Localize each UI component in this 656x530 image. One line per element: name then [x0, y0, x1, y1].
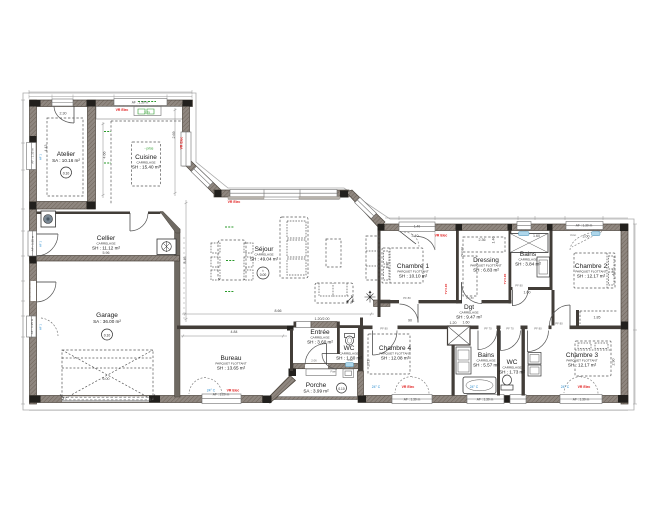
svg-text:VR Elec: VR Elec — [116, 108, 129, 112]
svg-text:24° C: 24° C — [470, 385, 479, 389]
svg-text:5.96: 5.96 — [103, 251, 110, 255]
svg-text:24° C: 24° C — [372, 385, 381, 389]
svg-text:AF 1: AF 1 — [39, 241, 43, 247]
svg-text:8.66: 8.66 — [275, 309, 282, 313]
svg-text:2.36: 2.36 — [479, 238, 486, 242]
svg-text:SH : 5.57 m²: SH : 5.57 m² — [473, 363, 499, 368]
svg-text:0.10: 0.10 — [104, 334, 111, 338]
svg-text:SH : 3.60 m²: SH : 3.60 m² — [307, 340, 333, 345]
svg-text:SH : 13.65 m²: SH : 13.65 m² — [217, 366, 246, 371]
svg-text:PF 80: PF 80 — [555, 322, 563, 326]
svg-text:2.69: 2.69 — [172, 132, 176, 139]
svg-text:2.72: 2.72 — [367, 360, 371, 367]
svg-text:2.06: 2.06 — [311, 359, 317, 363]
svg-text:3.40: 3.40 — [412, 234, 419, 238]
svg-text:PF 70: PF 70 — [506, 327, 514, 331]
svg-text:AF : 1.20 m: AF : 1.20 m — [213, 393, 230, 397]
svg-text:AF : 1.35 m: AF : 1.35 m — [31, 235, 35, 251]
svg-text:SH : 12.17 m²: SH : 12.17 m² — [577, 274, 606, 279]
svg-text:TV 0.90: TV 0.90 — [503, 273, 507, 284]
svg-text:1.00: 1.00 — [347, 358, 353, 362]
svg-text:1.60: 1.60 — [463, 321, 470, 325]
svg-text:1.85: 1.85 — [594, 316, 601, 320]
svg-text:AF : 1.30 m: AF : 1.30 m — [573, 398, 590, 402]
svg-text:0.10: 0.10 — [63, 172, 70, 176]
svg-text:SH : 15.40 m²: SH : 15.40 m² — [132, 165, 161, 170]
svg-text:SH : 10.10 m²: SH : 10.10 m² — [399, 274, 428, 279]
svg-text:2.90: 2.90 — [612, 359, 616, 366]
svg-text:24° C: 24° C — [561, 385, 570, 389]
svg-text:1.40: 1.40 — [492, 237, 496, 244]
svg-text:1.20: 1.20 — [450, 321, 457, 325]
svg-text:2.87: 2.87 — [386, 262, 390, 269]
svg-text:0.10: 0.10 — [338, 387, 344, 391]
svg-text:4.87: 4.87 — [612, 269, 616, 276]
svg-text:1.60: 1.60 — [524, 291, 531, 295]
svg-text:1.60: 1.60 — [533, 234, 540, 238]
svg-text:PF 80: PF 80 — [515, 284, 523, 288]
svg-text:SH : 11.12 m²: SH : 11.12 m² — [92, 246, 120, 251]
svg-text:VR Elec: VR Elec — [402, 385, 415, 389]
svg-text:SH : 6.83 m²: SH : 6.83 m² — [473, 268, 499, 273]
svg-text:VR Elec: VR Elec — [227, 389, 240, 393]
svg-text:24° C: 24° C — [207, 389, 216, 393]
svg-text:Volet: Volet — [570, 233, 576, 237]
svg-text:AF : 1.30 m: AF : 1.30 m — [576, 224, 593, 228]
svg-text:8.46: 8.46 — [183, 257, 187, 264]
svg-text:1.20/2.00: 1.20/2.00 — [315, 317, 330, 321]
svg-text:AF : 1.30 m: AF : 1.30 m — [477, 398, 494, 402]
svg-text:PF 70: PF 70 — [484, 327, 492, 331]
svg-text:SH : 49.04 m²: SH : 49.04 m² — [250, 257, 279, 262]
svg-text:Garage: Garage — [96, 312, 118, 319]
svg-text:SA : 36.00 m²: SA : 36.00 m² — [93, 319, 121, 324]
svg-text:VR Elec: VR Elec — [435, 234, 448, 238]
svg-text:PF 80: PF 80 — [403, 296, 411, 300]
svg-text:PF 80: PF 80 — [380, 327, 388, 331]
svg-text:VR Elec: VR Elec — [180, 137, 184, 150]
svg-text:79/2.06: 79/2.06 — [460, 247, 464, 257]
svg-text:VR Elec: VR Elec — [578, 385, 591, 389]
svg-text:Atelier: Atelier — [57, 151, 76, 158]
svg-text:PF 80: PF 80 — [534, 327, 542, 331]
svg-text:4.84: 4.84 — [231, 330, 238, 334]
svg-text:SH : 9.47 m²: SH : 9.47 m² — [456, 315, 482, 320]
svg-text:3.00: 3.00 — [583, 235, 590, 239]
svg-text:SA : 10.16 m²: SA : 10.16 m² — [52, 158, 80, 163]
svg-text:2.30: 2.30 — [60, 112, 67, 116]
svg-text:AF : 1.35 m: AF : 1.35 m — [31, 148, 35, 164]
svg-text:AF 1: AF 1 — [39, 324, 43, 330]
svg-text:AF 1: AF 1 — [39, 154, 43, 160]
svg-text:◦ prise: ◦ prise — [145, 147, 154, 151]
svg-text:SH : 3.84 m²: SH : 3.84 m² — [515, 262, 541, 267]
svg-text:PF 80: PF 80 — [466, 296, 474, 300]
svg-text:Fixe: Fixe — [331, 370, 336, 374]
svg-text:VR Elec: VR Elec — [228, 200, 241, 204]
svg-text:4.66: 4.66 — [103, 152, 107, 159]
svg-text:SH : 12.17 m²: SH : 12.17 m² — [568, 363, 597, 368]
svg-text:0.00: 0.00 — [260, 273, 267, 277]
svg-text:3.79: 3.79 — [144, 111, 150, 115]
svg-text:SA : 3.99 m²: SA : 3.99 m² — [303, 389, 329, 394]
svg-text:AF : 1.30 m: AF : 1.30 m — [404, 398, 421, 402]
svg-text:AF : 1.35 m: AF : 1.35 m — [30, 318, 34, 334]
svg-text:6.00: 6.00 — [103, 377, 110, 381]
svg-text:TV 0.90: TV 0.90 — [444, 283, 448, 294]
svg-text:1.40: 1.40 — [414, 225, 420, 229]
svg-text:AF : 1.30 m: AF : 1.30 m — [132, 100, 149, 104]
svg-text:SH : 1.73 m²: SH : 1.73 m² — [499, 370, 525, 375]
svg-text:SH : 12.08 m²: SH : 12.08 m² — [381, 356, 410, 361]
svg-text:4.43: 4.43 — [44, 145, 48, 152]
svg-text:90: 90 — [408, 319, 412, 323]
